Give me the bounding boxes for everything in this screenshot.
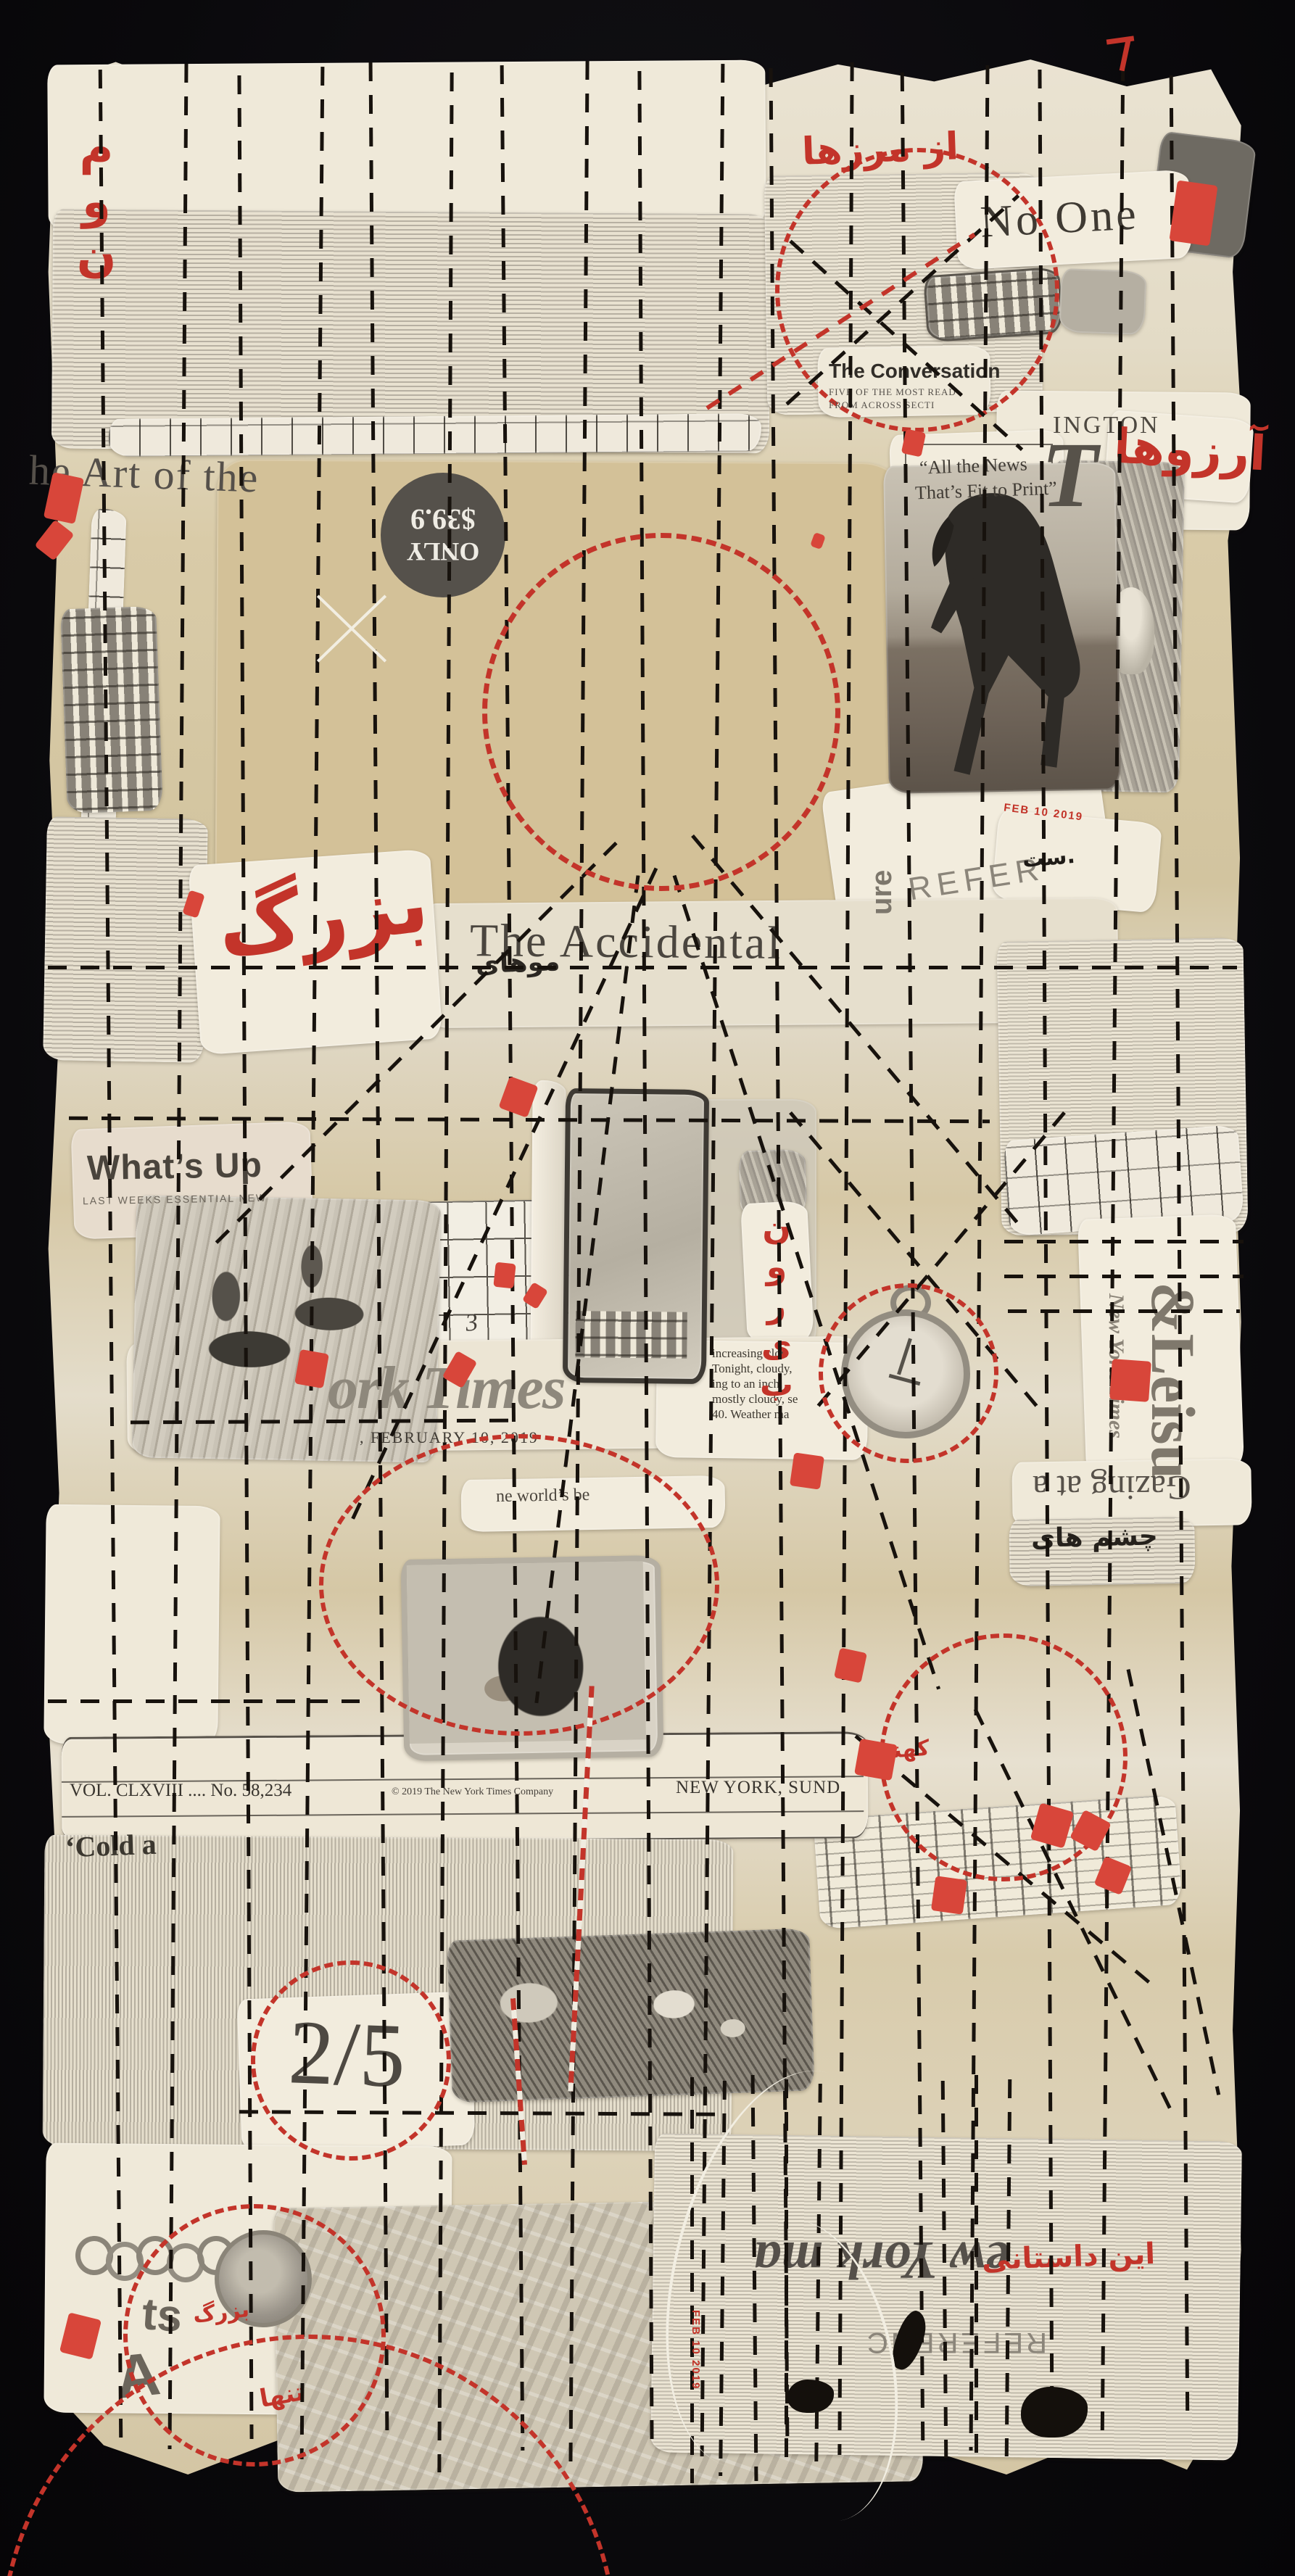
gray-scrap bbox=[1059, 268, 1147, 335]
no-one-headline: No One bbox=[979, 189, 1140, 248]
stitch-line-horizontal bbox=[1008, 1309, 1240, 1313]
stitch-line-horizontal bbox=[48, 966, 1237, 969]
new-york-dateline: NEW YORK, SUND bbox=[676, 1778, 840, 1798]
conversation-subtitle: FROM ACROSS SECTI bbox=[829, 399, 935, 411]
price-sticker: ONLY $39.9 bbox=[381, 473, 505, 597]
nyt-motto-line1: “All the News bbox=[919, 453, 1028, 479]
price-value: $39.9 bbox=[410, 503, 476, 537]
red-diamond bbox=[294, 1349, 329, 1388]
paper-scrap bbox=[47, 60, 766, 232]
film-strip bbox=[109, 413, 761, 457]
farsi-cheshm: چشم های bbox=[1031, 1521, 1159, 1553]
stitch-line-horizontal bbox=[48, 1699, 360, 1703]
red-stitch-circle-sun bbox=[482, 533, 840, 891]
manuscript-caption bbox=[575, 1311, 687, 1359]
framed-manuscript-page bbox=[563, 1088, 709, 1384]
red-mark-stroke bbox=[1120, 41, 1131, 72]
stitch-line-horizontal bbox=[1004, 1275, 1244, 1278]
conversation-title: The Conversation bbox=[829, 360, 1000, 383]
red-diamond bbox=[1169, 181, 1217, 247]
whats-up-headline: What’s Up bbox=[87, 1146, 263, 1188]
red-stitch-circle bbox=[819, 1283, 998, 1463]
volume-number-line: VOL. CLXVIII .... No. 58,234 bbox=[70, 1781, 291, 1801]
copyright-line: © 2019 The New York Times Company bbox=[392, 1786, 553, 1798]
red-diamond bbox=[931, 1876, 967, 1915]
stitch-line-horizontal bbox=[1004, 1240, 1244, 1243]
red-diamond bbox=[493, 1262, 516, 1289]
farsi-vertical-word: نوم bbox=[70, 122, 123, 283]
farsi-arezooha: آرزوها bbox=[1112, 418, 1267, 482]
farsi-headline-top: از مرزها bbox=[801, 125, 959, 173]
collage-artwork-photo: نوم از مرزها No One The Conversation FIV… bbox=[0, 0, 1295, 2576]
cold-headline-fragment: ‘Cold a bbox=[65, 1827, 157, 1864]
paper-scrap bbox=[43, 816, 208, 1063]
folio-rule bbox=[62, 1810, 864, 1818]
ure-fragment: ure bbox=[866, 870, 898, 915]
farsi-ast: ست. bbox=[1022, 843, 1076, 873]
umbrella-etching bbox=[447, 1928, 815, 2103]
stitch-line bbox=[975, 2075, 978, 2459]
red-diamond bbox=[790, 1452, 824, 1489]
red-stitch-circle bbox=[251, 1960, 451, 2161]
red-diamond bbox=[854, 1739, 898, 1781]
weather-line: 40. Weather ma bbox=[712, 1407, 798, 1422]
paper-scrap bbox=[44, 1504, 220, 1745]
red-diamond bbox=[1109, 1359, 1151, 1402]
price-only-label: ONLY bbox=[407, 537, 480, 568]
calligraphy-scrap bbox=[60, 606, 163, 813]
gothic-t-masthead: T bbox=[1041, 422, 1098, 529]
red-stitch-ellipse bbox=[319, 1434, 719, 1736]
